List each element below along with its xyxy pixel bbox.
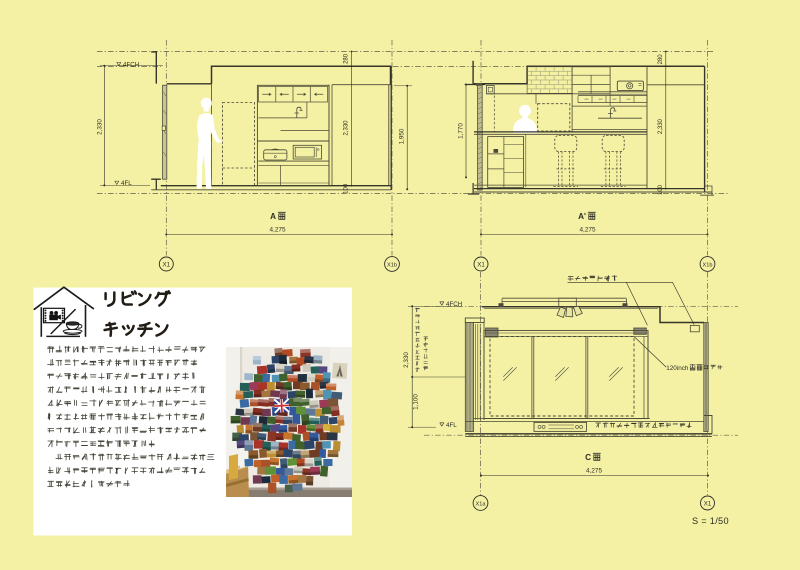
svg-text:X1a: X1a xyxy=(476,502,487,508)
svg-text:S = 1/50: S = 1/50 xyxy=(692,516,729,526)
svg-text:4FL: 4FL xyxy=(121,180,132,187)
svg-text:280: 280 xyxy=(658,54,664,65)
svg-text:A: A xyxy=(270,212,276,221)
svg-text:4FL: 4FL xyxy=(446,422,457,429)
svg-text:4FCH: 4FCH xyxy=(123,62,139,69)
svg-text:4,275: 4,275 xyxy=(580,227,596,234)
svg-text:1,770: 1,770 xyxy=(458,123,465,139)
svg-text:280: 280 xyxy=(344,53,350,64)
svg-text:1,100: 1,100 xyxy=(413,394,420,410)
svg-text:2,330: 2,330 xyxy=(97,119,104,135)
svg-text:4FCH: 4FCH xyxy=(446,301,462,308)
svg-text:120inch: 120inch xyxy=(666,365,689,372)
svg-text:100: 100 xyxy=(658,184,664,195)
svg-text:C: C xyxy=(585,453,591,462)
svg-text:X1: X1 xyxy=(704,501,712,508)
svg-text:X1b: X1b xyxy=(703,263,713,269)
svg-text:2,330: 2,330 xyxy=(344,120,350,136)
svg-text:X1: X1 xyxy=(477,262,485,269)
svg-text:X1: X1 xyxy=(163,262,171,269)
svg-text:4,275: 4,275 xyxy=(270,227,286,234)
svg-text:100: 100 xyxy=(344,183,350,194)
svg-text:A': A' xyxy=(578,212,586,221)
svg-text:4,275: 4,275 xyxy=(586,467,602,474)
svg-text:1,950: 1,950 xyxy=(399,128,406,144)
svg-text:2,330: 2,330 xyxy=(658,118,664,134)
svg-text:X1b: X1b xyxy=(387,263,397,269)
svg-text:2,330: 2,330 xyxy=(403,352,410,368)
